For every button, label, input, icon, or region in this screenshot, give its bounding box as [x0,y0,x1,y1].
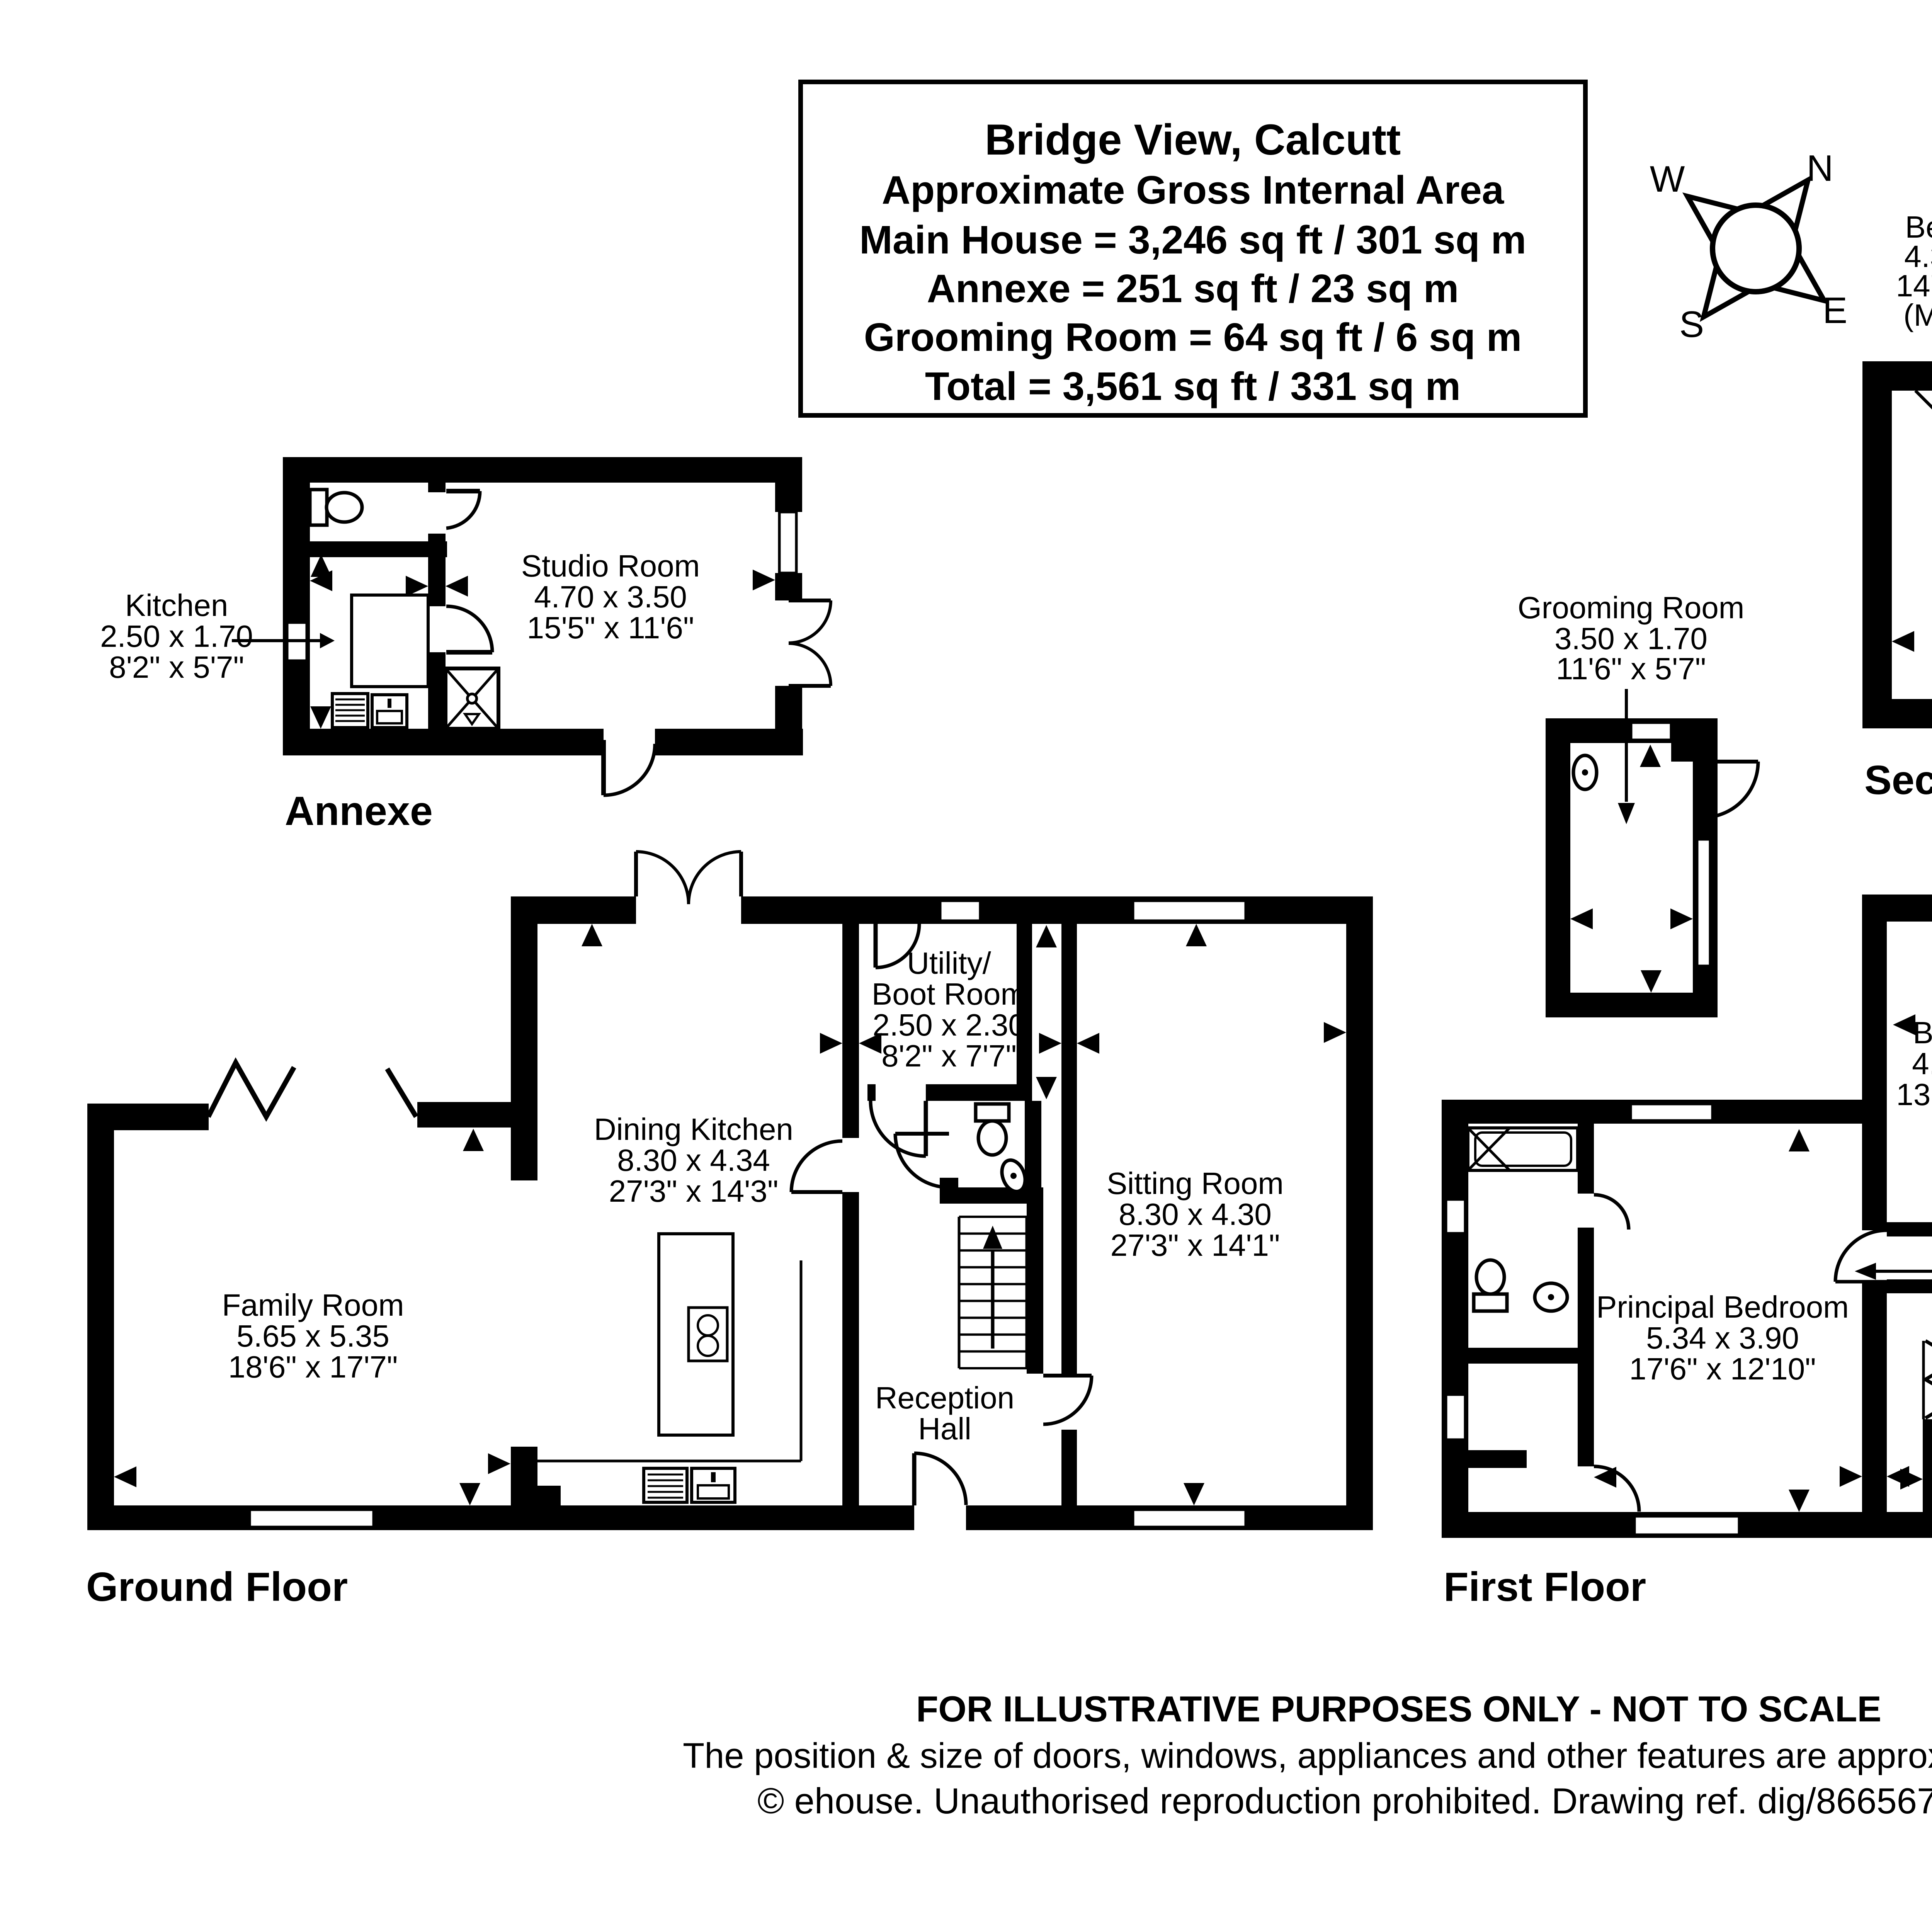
svg-text:W: W [1650,158,1685,200]
svg-text:FOR ILLUSTRATIVE PURPOSES ONLY: FOR ILLUSTRATIVE PURPOSES ONLY - NOT TO … [916,1689,1881,1729]
svg-text:8.30 x 4.30: 8.30 x 4.30 [1119,1197,1272,1231]
svg-text:Dining Kitchen: Dining Kitchen [594,1112,793,1146]
svg-text:27'3" x 14'3": 27'3" x 14'3" [609,1174,779,1208]
svg-text:Annexe = 251 sq ft / 23 sq m: Annexe = 251 sq ft / 23 sq m [927,266,1459,311]
svg-text:8.30 x 4.34: 8.30 x 4.34 [617,1143,770,1177]
svg-text:11'6" x 5'7": 11'6" x 5'7" [1556,651,1706,686]
svg-text:4.23 x 3.20: 4.23 x 3.20 [1912,1046,1932,1081]
svg-text:Sitting Room: Sitting Room [1107,1166,1284,1201]
svg-text:8'2" x 7'7": 8'2" x 7'7" [881,1039,1017,1073]
svg-text:5.34 x 3.90: 5.34 x 3.90 [1646,1321,1799,1355]
svg-text:Kitchen: Kitchen [125,588,228,622]
svg-text:Total = 3,561 sq ft / 331 sq m: Total = 3,561 sq ft / 331 sq m [925,364,1461,408]
svg-text:S: S [1679,304,1704,345]
svg-text:Bedroom 3: Bedroom 3 [1913,1015,1932,1050]
svg-text:Family Room: Family Room [222,1288,404,1322]
svg-text:4.70 x 3.50: 4.70 x 3.50 [534,580,687,614]
svg-text:Studio Room: Studio Room [521,549,700,583]
svg-text:17'6" x 12'10": 17'6" x 12'10" [1629,1352,1816,1386]
svg-text:2.50 x 1.70: 2.50 x 1.70 [100,619,253,653]
svg-text:13'11" x 10'6": 13'11" x 10'6" [1896,1077,1932,1112]
svg-text:Second Floor: Second Floor [1864,757,1932,803]
svg-text:N: N [1806,148,1833,189]
svg-text:Boot Room: Boot Room [872,977,1026,1011]
svg-text:Principal Bedroom: Principal Bedroom [1596,1290,1849,1324]
svg-text:E: E [1823,290,1847,331]
svg-text:Bridge View, Calcutt: Bridge View, Calcutt [985,116,1401,164]
svg-text:15'5" x 11'6": 15'5" x 11'6" [527,611,694,645]
svg-text:18'6" x 17'7": 18'6" x 17'7" [228,1350,398,1384]
svg-text:Utility/: Utility/ [907,946,992,980]
svg-text:Main House = 3,246 sq ft / 301: Main House = 3,246 sq ft / 301 sq m [859,218,1526,262]
svg-text:27'3" x 14'1": 27'3" x 14'1" [1111,1228,1280,1262]
svg-text:Hall: Hall [918,1412,971,1446]
svg-text:First Floor: First Floor [1444,1564,1646,1610]
svg-text:Reception: Reception [875,1381,1014,1415]
svg-text:2.50 x 2.30: 2.50 x 2.30 [872,1008,1026,1042]
svg-text:Grooming Room = 64 sq ft / 6 s: Grooming Room = 64 sq ft / 6 sq m [864,315,1522,359]
svg-text:Grooming Room: Grooming Room [1518,590,1745,625]
svg-text:Ground Floor: Ground Floor [86,1564,348,1610]
svg-text:© ehouse. Unauthorised reprodu: © ehouse. Unauthorised reproduction proh… [757,1781,1932,1821]
svg-text:The position & size of doors,: The position & size of doors, windows, a… [683,1736,1932,1776]
svg-text:(Maximum): (Maximum) [1903,298,1932,332]
svg-text:5.65 x 5.35: 5.65 x 5.35 [236,1319,389,1353]
svg-text:Annexe: Annexe [285,788,433,834]
svg-text:3.50 x 1.70: 3.50 x 1.70 [1554,621,1708,656]
svg-text:Approximate Gross Internal Are: Approximate Gross Internal Area [882,168,1504,212]
svg-text:8'2" x 5'7": 8'2" x 5'7" [109,650,244,684]
